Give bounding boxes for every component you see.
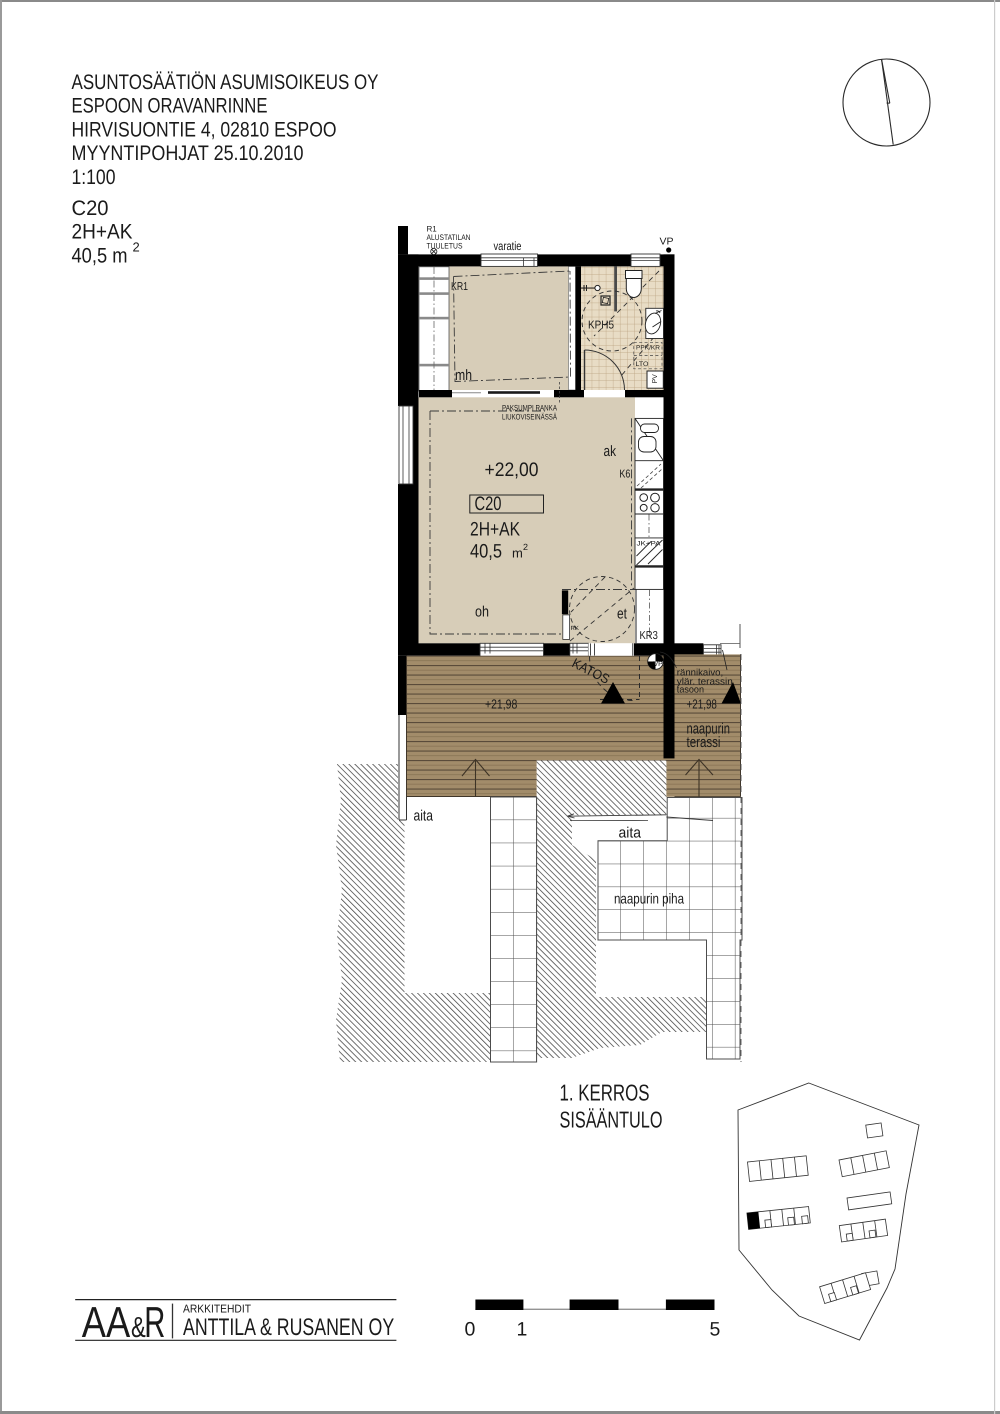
svg-text:2: 2: [133, 240, 140, 255]
svg-text:ak: ak: [604, 443, 617, 460]
svg-text:oh: oh: [475, 604, 489, 621]
svg-text:2H+AK: 2H+AK: [72, 221, 133, 244]
svg-text:40,5 m: 40,5 m: [72, 244, 128, 267]
svg-text:KPH5: KPH5: [588, 320, 614, 332]
svg-text:MYYNTIPOHJAT 25.10.2010: MYYNTIPOHJAT 25.10.2010: [72, 142, 304, 165]
svg-text:2H+AK: 2H+AK: [470, 519, 520, 541]
svg-text:SISÄÄNTULO: SISÄÄNTULO: [560, 1107, 663, 1133]
svg-text:naapurin piha: naapurin piha: [614, 892, 685, 908]
svg-text:1:100: 1:100: [72, 166, 116, 189]
svg-text:LIUKOVISEINÄSSÄ: LIUKOVISEINÄSSÄ: [502, 413, 558, 422]
svg-text:aita: aita: [619, 825, 642, 842]
svg-text:R: R: [144, 1299, 165, 1347]
svg-text:+21,98: +21,98: [485, 697, 517, 712]
svg-text:varatie: varatie: [494, 239, 522, 253]
svg-text:ASUNTOSÄÄTIÖN ASUMISOIKEUS OY: ASUNTOSÄÄTIÖN ASUMISOIKEUS OY: [72, 71, 379, 94]
svg-text:C20: C20: [475, 493, 502, 515]
svg-text:et: et: [617, 606, 628, 623]
svg-text:KR3: KR3: [640, 630, 658, 642]
svg-text:mh: mh: [455, 367, 472, 384]
svg-text:0: 0: [465, 1319, 476, 1341]
svg-text:PAKSUMPI RANKA: PAKSUMPI RANKA: [502, 404, 558, 413]
svg-text:RK: RK: [571, 625, 579, 632]
svg-text:VP: VP: [654, 661, 664, 668]
svg-text:1. KERROS: 1. KERROS: [560, 1080, 650, 1106]
svg-text:AA: AA: [82, 1299, 130, 1347]
svg-text:tasoon: tasoon: [677, 685, 704, 696]
svg-text:1: 1: [517, 1319, 528, 1341]
svg-text:VP: VP: [660, 237, 674, 248]
svg-text:40,5: 40,5: [470, 541, 502, 563]
svg-text:ANTTILA & RUSANEN OY: ANTTILA & RUSANEN OY: [183, 1314, 394, 1341]
svg-text:ESPOON ORAVANRINNE: ESPOON ORAVANRINNE: [72, 95, 268, 118]
svg-text:KR1: KR1: [451, 281, 468, 293]
svg-text:2: 2: [523, 542, 528, 552]
svg-text:terassi: terassi: [687, 734, 721, 751]
svg-text:+21,98: +21,98: [687, 697, 717, 712]
svg-text:JK+PA: JK+PA: [637, 541, 662, 548]
svg-text:LTO: LTO: [636, 361, 649, 368]
svg-text:HIRVISUONTIE 4, 02810 ESPOO: HIRVISUONTIE 4, 02810 ESPOO: [72, 118, 337, 141]
svg-text:aita: aita: [414, 808, 434, 825]
svg-text:C20: C20: [72, 197, 109, 220]
svg-text:m: m: [512, 546, 523, 561]
svg-text:K6: K6: [619, 469, 630, 481]
svg-text:PPK/KR: PPK/KR: [636, 345, 661, 352]
svg-text:5: 5: [710, 1319, 721, 1341]
svg-text:PV: PV: [652, 374, 659, 384]
svg-text:+22,00: +22,00: [485, 459, 539, 481]
